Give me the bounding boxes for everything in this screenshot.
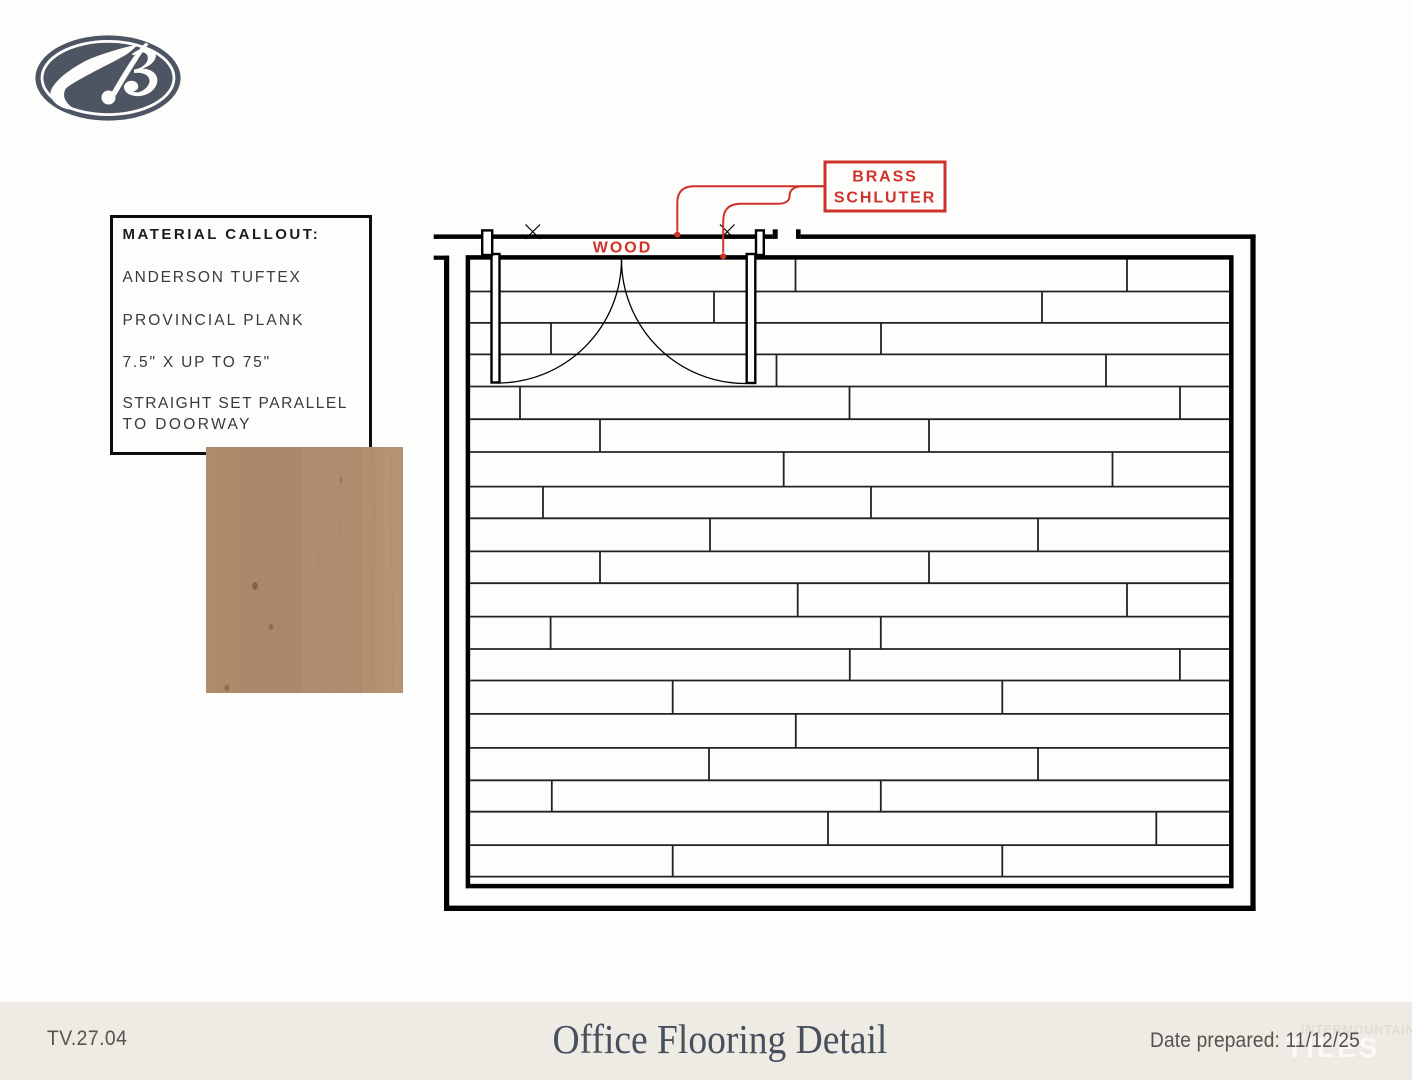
- svg-text:BRASS: BRASS: [852, 169, 918, 186]
- svg-text:WOOD: WOOD: [593, 239, 653, 256]
- svg-text:SCHLUTER: SCHLUTER: [834, 190, 936, 207]
